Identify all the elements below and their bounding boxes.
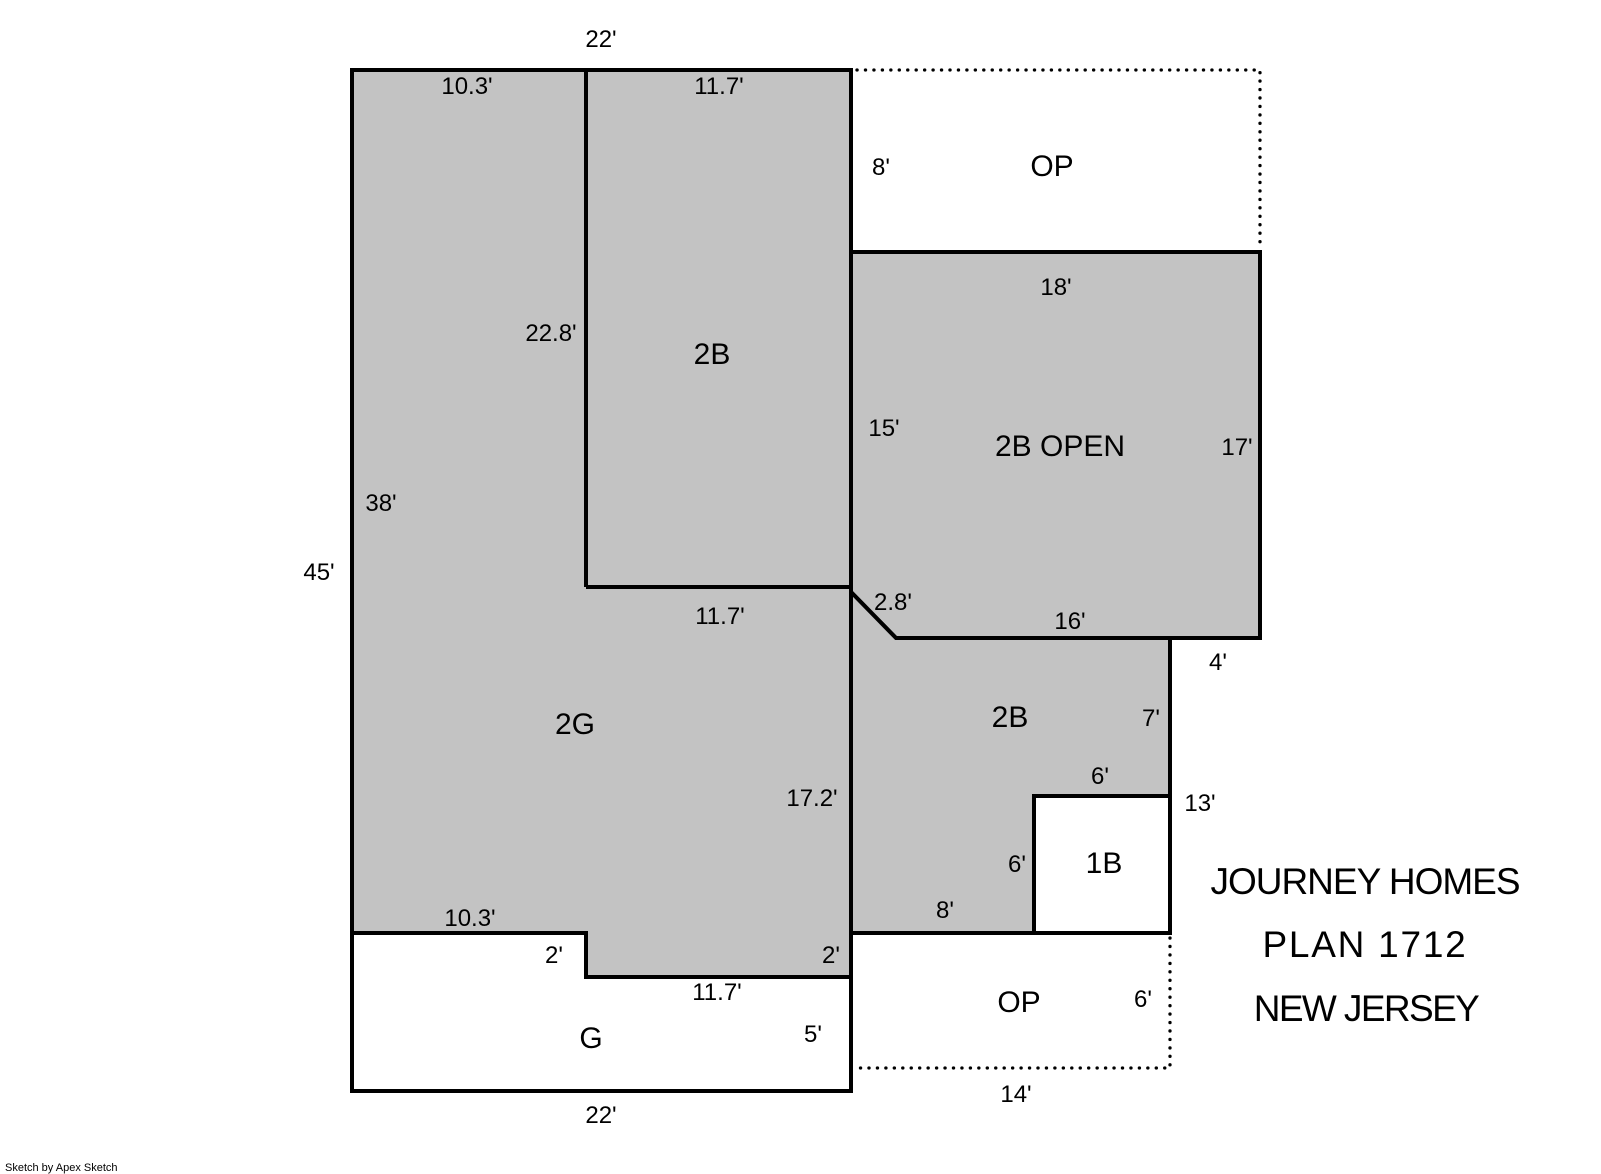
svg-text:17.2': 17.2' bbox=[786, 785, 837, 812]
svg-text:6': 6' bbox=[1008, 851, 1026, 878]
svg-text:G: G bbox=[579, 1022, 602, 1055]
svg-text:38': 38' bbox=[365, 490, 396, 517]
svg-text:5': 5' bbox=[804, 1021, 822, 1048]
svg-text:OP: OP bbox=[1030, 150, 1073, 183]
svg-text:11.7': 11.7' bbox=[692, 979, 742, 1006]
svg-text:2.8': 2.8' bbox=[874, 589, 912, 616]
svg-text:2B: 2B bbox=[694, 338, 731, 371]
svg-text:7': 7' bbox=[1142, 705, 1160, 732]
svg-text:2G: 2G bbox=[555, 708, 595, 741]
svg-text:11.7': 11.7' bbox=[694, 73, 744, 100]
svg-text:16': 16' bbox=[1054, 608, 1085, 635]
svg-text:6': 6' bbox=[1091, 763, 1109, 790]
svg-text:22': 22' bbox=[585, 1102, 616, 1129]
svg-text:10.3': 10.3' bbox=[441, 73, 492, 100]
svg-text:Sketch by Apex Sketch: Sketch by Apex Sketch bbox=[5, 1162, 118, 1174]
svg-text:8': 8' bbox=[936, 897, 954, 924]
svg-text:10.3': 10.3' bbox=[444, 905, 495, 932]
svg-text:22': 22' bbox=[585, 26, 616, 53]
svg-text:17': 17' bbox=[1221, 434, 1252, 461]
svg-text:2B: 2B bbox=[992, 701, 1029, 734]
svg-text:45': 45' bbox=[303, 559, 334, 586]
svg-text:11.7': 11.7' bbox=[695, 603, 745, 630]
svg-text:22.8': 22.8' bbox=[525, 320, 576, 347]
svg-text:2': 2' bbox=[545, 942, 563, 969]
svg-text:NEW JERSEY: NEW JERSEY bbox=[1254, 988, 1479, 1029]
svg-text:2': 2' bbox=[822, 942, 840, 969]
svg-text:2B OPEN: 2B OPEN bbox=[995, 430, 1125, 463]
svg-text:4': 4' bbox=[1209, 649, 1227, 676]
svg-text:JOURNEY HOMES: JOURNEY HOMES bbox=[1210, 861, 1519, 902]
svg-text:8': 8' bbox=[872, 154, 890, 181]
svg-text:13': 13' bbox=[1184, 790, 1215, 817]
svg-text:18': 18' bbox=[1040, 274, 1071, 301]
svg-text:15': 15' bbox=[868, 415, 899, 442]
svg-text:PLAN 1712: PLAN 1712 bbox=[1263, 924, 1468, 965]
svg-text:1B: 1B bbox=[1086, 847, 1123, 880]
svg-text:OP: OP bbox=[997, 986, 1040, 1019]
svg-text:6': 6' bbox=[1134, 986, 1152, 1013]
svg-text:14': 14' bbox=[1000, 1081, 1031, 1108]
